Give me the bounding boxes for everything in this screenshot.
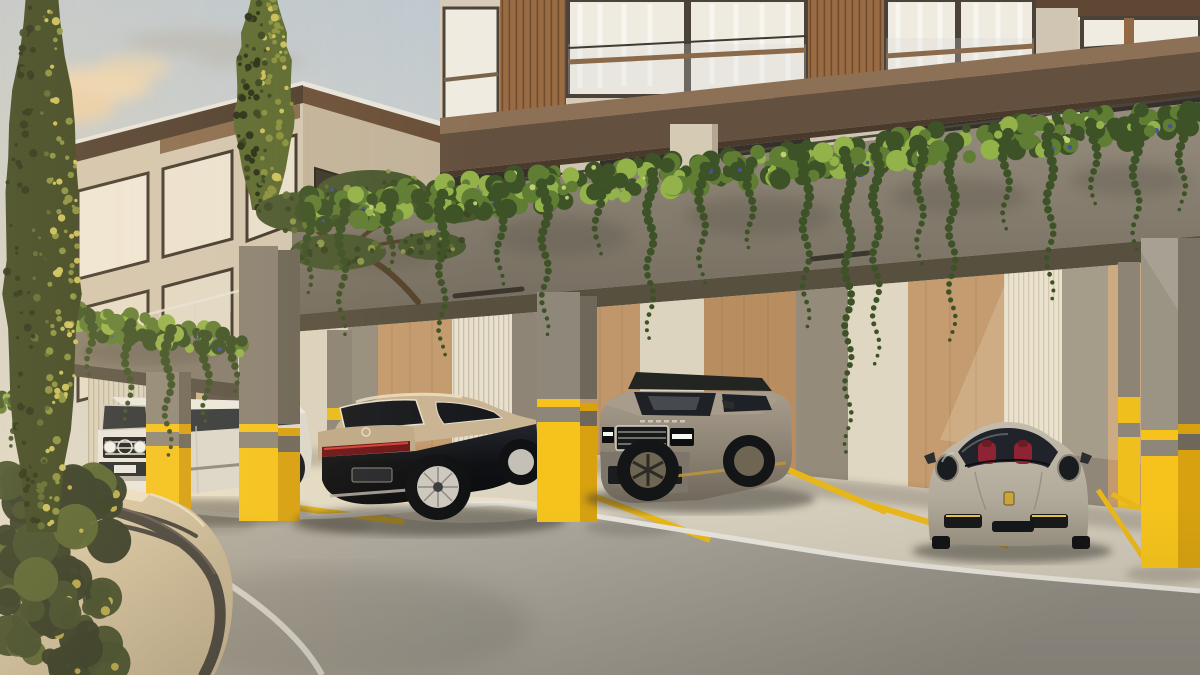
color-grade xyxy=(0,0,1200,675)
architectural-render-image: Luxury residential building with covered… xyxy=(0,0,1200,675)
vignette-overlay xyxy=(0,0,1200,675)
